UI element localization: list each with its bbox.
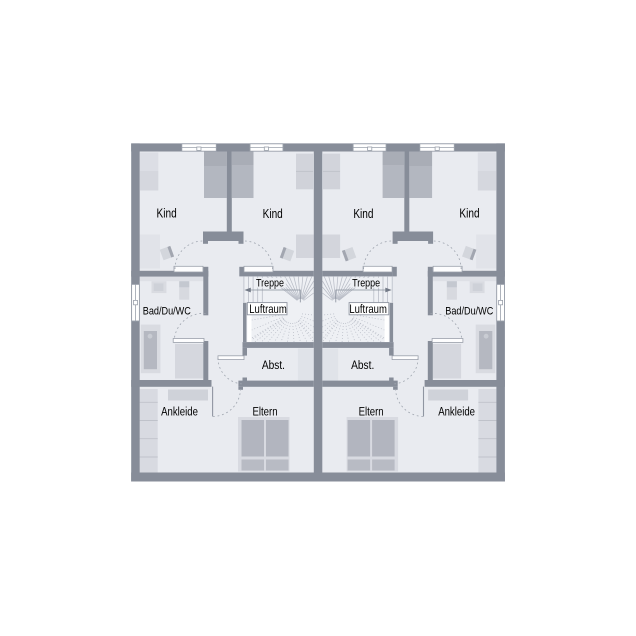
svg-text:Eltern: Eltern <box>359 405 384 418</box>
svg-text:Luftraum: Luftraum <box>249 303 287 316</box>
svg-text:Kind: Kind <box>263 208 283 221</box>
svg-text:Eltern: Eltern <box>252 405 277 418</box>
svg-text:Kind: Kind <box>459 208 479 221</box>
svg-text:Kind: Kind <box>353 208 373 221</box>
svg-text:Treppe: Treppe <box>352 278 380 290</box>
svg-text:Ankleide: Ankleide <box>438 406 475 419</box>
svg-text:Treppe: Treppe <box>256 278 284 290</box>
svg-text:Ankleide: Ankleide <box>161 406 198 419</box>
svg-text:Luftraum: Luftraum <box>349 303 387 316</box>
svg-text:Abst.: Abst. <box>262 359 285 372</box>
svg-text:Bad/Du/WC: Bad/Du/WC <box>143 306 192 318</box>
svg-text:Abst.: Abst. <box>351 359 374 372</box>
svg-text:Kind: Kind <box>157 208 177 221</box>
svg-text:Bad/Du/WC: Bad/Du/WC <box>445 306 494 318</box>
